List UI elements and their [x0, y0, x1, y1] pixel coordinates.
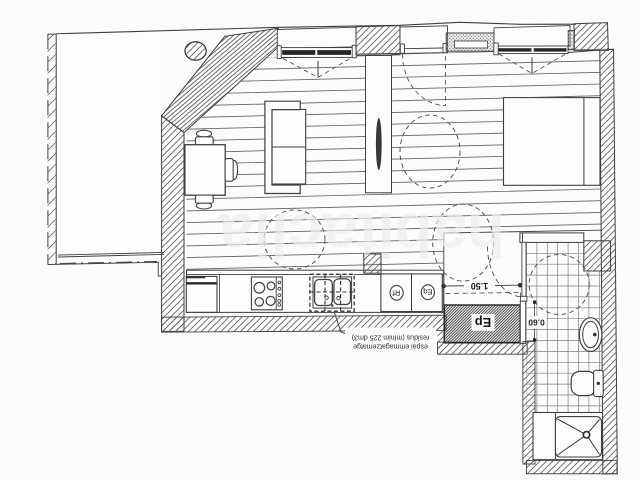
svg-text:habitaclia: habitaclia — [218, 200, 505, 269]
svg-text:1.50: 1.50 — [471, 281, 489, 291]
svg-text:Eq: Eq — [423, 288, 432, 297]
svg-text:Rf: Rf — [392, 288, 400, 297]
svg-text:Ep: Ep — [475, 315, 492, 330]
svg-text:0.60: 0.60 — [528, 318, 545, 328]
